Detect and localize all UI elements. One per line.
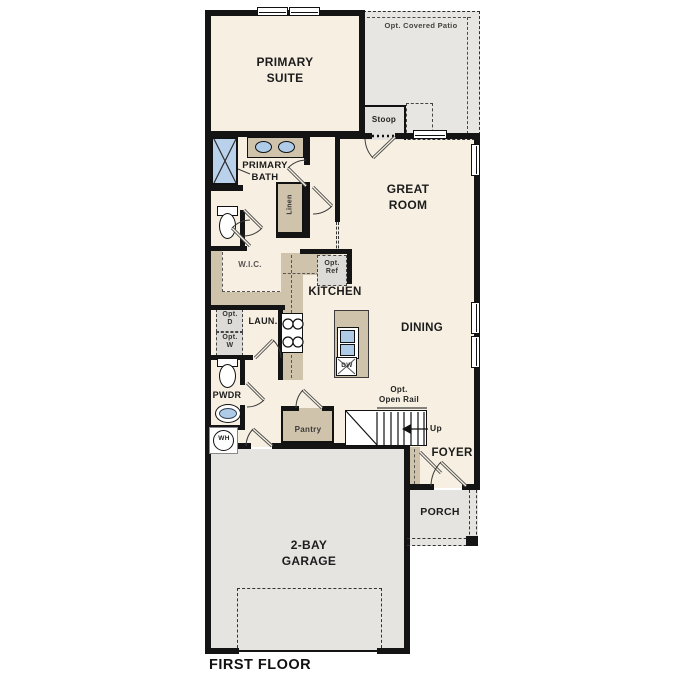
- window-dining-1: [471, 302, 480, 334]
- pwdr-sink-basin: [219, 408, 237, 419]
- window-greatroom-right: [471, 144, 480, 176]
- wall-linen-bottom: [276, 232, 310, 238]
- wall-pwdr-right-a: [240, 355, 245, 385]
- stairs: [345, 410, 427, 446]
- wall-right-b: [474, 176, 480, 303]
- porch-post: [466, 536, 478, 546]
- room-label-opt-covered-patio: Opt. Covered Patio: [385, 21, 458, 31]
- patio-inner-dash-right: [467, 17, 468, 134]
- label-water-heater: WH: [218, 435, 229, 443]
- room-label-porch: PORCH: [420, 506, 459, 520]
- garage-door-dashed: [237, 588, 382, 648]
- room-label-kitchen: KITCHEN: [308, 285, 361, 300]
- floor-plan: PRIMARY SUITE Opt. Covered Patio Stoop G…: [0, 0, 687, 687]
- wic-shelf-left: [210, 250, 222, 294]
- window-greatroom-top: [413, 130, 447, 139]
- wall-below-shower: [205, 185, 243, 191]
- range: [281, 313, 303, 353]
- label-up: Up: [430, 423, 442, 434]
- shower: [211, 137, 238, 185]
- label-opt-washer: Opt. W: [222, 334, 237, 351]
- foyer-closet-dash: [414, 449, 415, 484]
- island-sink-basin-2: [340, 344, 355, 356]
- wall-kitchen-right: [347, 249, 352, 284]
- wall-garage-bottom-right: [377, 648, 410, 654]
- window-suite-2: [289, 7, 320, 16]
- wall-wic-laundry: [205, 305, 285, 310]
- label-opt-ref: Opt. Ref: [324, 260, 339, 277]
- wall-foyer-bottom-a: [404, 484, 434, 490]
- pwdr-toilet-bowl: [219, 364, 236, 388]
- room-label-linen: Linen: [285, 194, 294, 214]
- wall-foyer-bottom-b: [462, 484, 480, 490]
- bath-toilet-bowl: [219, 213, 236, 239]
- patio-inner-dash-top: [367, 17, 471, 18]
- room-label-primary-bath: PRIMARY BATH: [242, 160, 288, 185]
- vanity-sink-2: [278, 141, 295, 153]
- room-label-stoop: Stoop: [372, 115, 396, 125]
- room-label-pantry: Pantry: [295, 425, 322, 435]
- room-label-garage: 2-BAY GARAGE: [282, 538, 336, 569]
- vanity-sink-1: [255, 141, 272, 153]
- garage-door-header: [237, 650, 379, 652]
- floor-title: FIRST FLOOR: [209, 657, 311, 673]
- label-dishwasher: DW: [341, 362, 352, 370]
- island-sink-basin-1: [340, 330, 355, 343]
- wall-bath-right-a: [304, 137, 310, 165]
- room-label-wic: W.I.C.: [238, 260, 262, 270]
- label-opt-dryer: Opt. D: [222, 311, 237, 328]
- wic-shelf-dash-v: [222, 252, 223, 292]
- room-label-great-room: GREAT ROOM: [387, 182, 430, 213]
- wic-shelf-dash-h: [222, 291, 280, 292]
- wall-greatroom-left: [335, 137, 340, 222]
- wall-garage-bottom-left: [205, 648, 239, 654]
- room-label-primary-suite: PRIMARY SUITE: [257, 55, 314, 86]
- room-label-laundry: LAUN.: [249, 316, 278, 328]
- wall-right-d: [474, 368, 480, 490]
- window-suite-1: [257, 7, 288, 16]
- wall-bath-right-b: [304, 182, 310, 237]
- pantry-wall-a: [281, 406, 299, 411]
- window-dining-2: [471, 336, 480, 368]
- label-opt-open-rail: Opt. Open Rail: [379, 385, 419, 405]
- wall-greatroom-top-a: [335, 133, 372, 139]
- pantry-wall-b: [322, 406, 334, 411]
- wall-left-exterior: [205, 10, 211, 654]
- wall-garage-right: [404, 449, 410, 654]
- room-label-pwdr: PWDR: [213, 390, 242, 402]
- wall-suite-right: [359, 10, 365, 137]
- wic-shelf-bottom: [210, 292, 282, 305]
- room-label-dining: DINING: [401, 321, 443, 336]
- wall-toilet-h: [205, 246, 247, 251]
- room-label-foyer: FOYER: [431, 446, 472, 461]
- wall-toilet-v: [240, 210, 245, 248]
- wall-kitchen-top: [300, 249, 350, 254]
